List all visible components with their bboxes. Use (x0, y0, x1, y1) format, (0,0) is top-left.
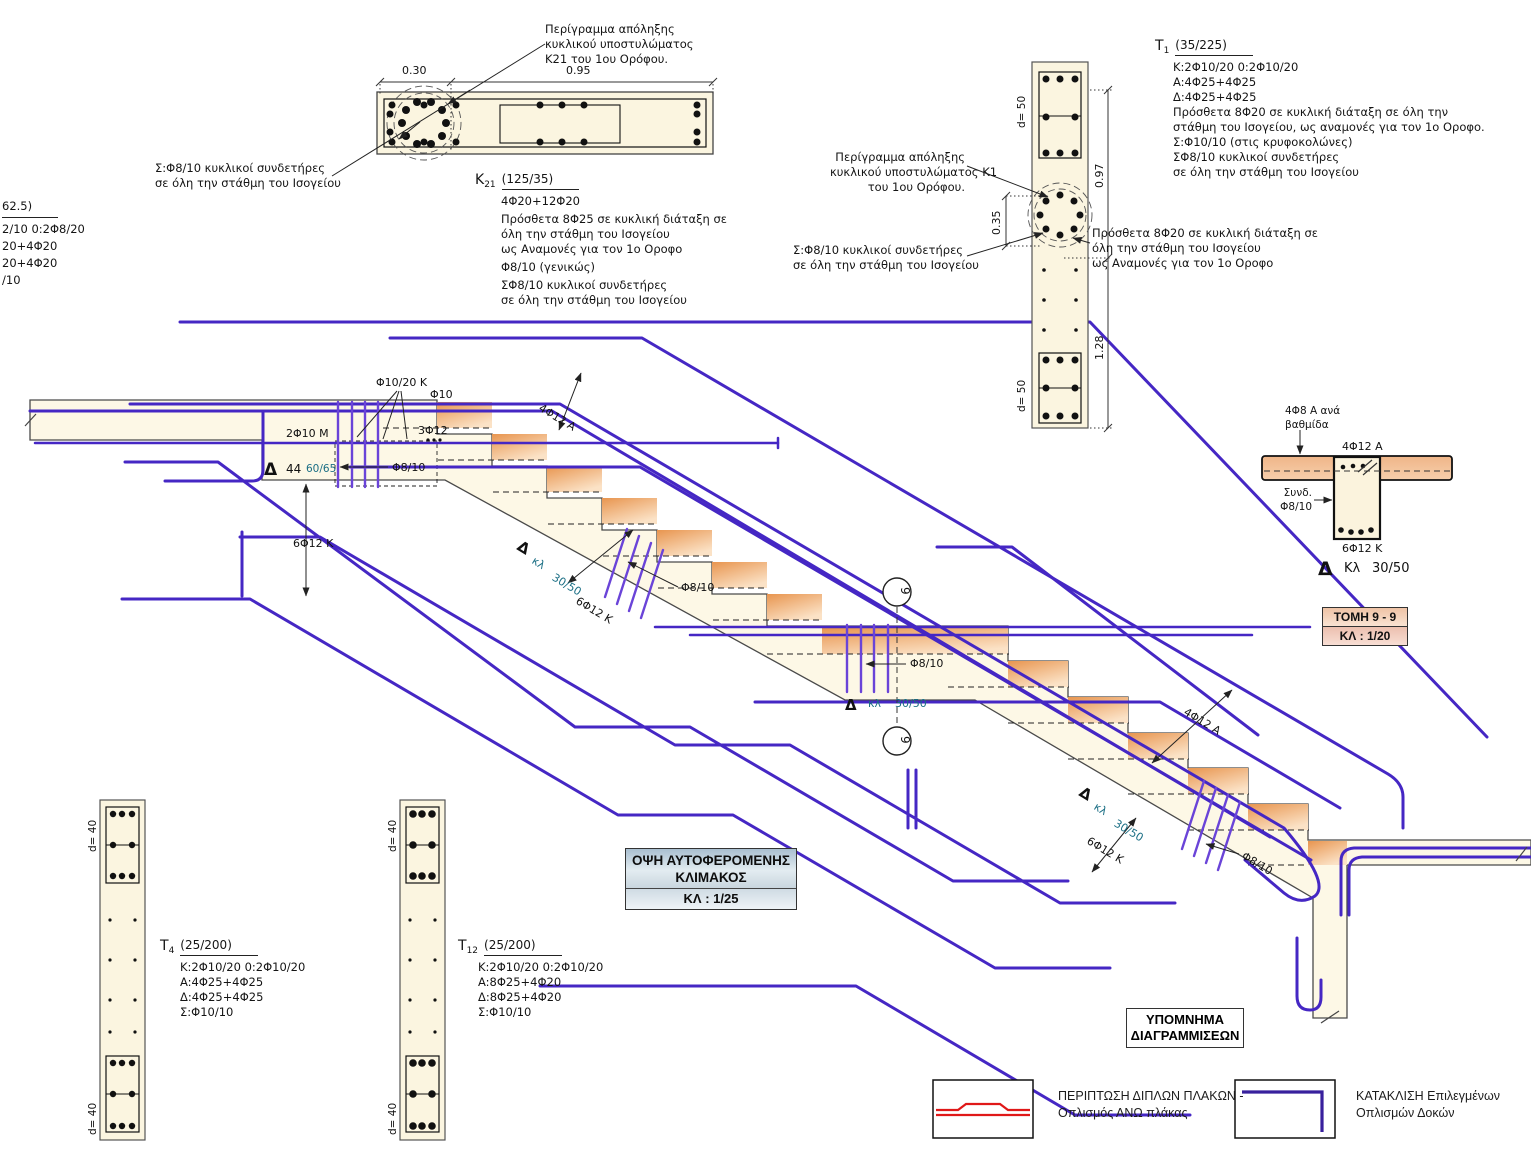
t4-note-line: Σ:Φ10/10 (180, 1005, 305, 1020)
tomh-title-box: ΤΟΜΗ 9 - 9 ΚΛ : 1/20 (1322, 607, 1408, 646)
left-fragment-line: 2/10 0:2Φ8/20 (2, 221, 85, 238)
t1-size: (35/225) (1175, 38, 1253, 56)
section-number-bottom: 9 (898, 736, 912, 744)
k21-callout-line: κυκλικού υποστυλώματος (545, 37, 694, 52)
t12-note-line: K:2Φ10/20 0:2Φ10/20 (478, 960, 603, 975)
label-phi10: Φ10 (430, 388, 453, 401)
label-kl-f2: κλ (1092, 800, 1110, 818)
k21-side-note-line: σε όλη την στάθμη του Ισογείου (155, 176, 341, 191)
t4-note-line: Δ:4Φ25+4Φ25 (180, 990, 305, 1005)
label-phi810-1: Φ8/10 (392, 461, 425, 474)
legend-item2-label: ΚΑΤΑΚΛΙΣΗ Επιλεγμένων Οπλισμών Δοκών (1356, 1088, 1500, 1122)
t4-size: (25/200) (180, 938, 258, 956)
t1-tag: T1 (1155, 39, 1169, 56)
beam-delta: Δ (1318, 558, 1333, 580)
label-phi810-2: Φ8/10 (681, 581, 714, 594)
k21-note-line: ΣΦ8/10 κυκλικοί συνδετήρες (501, 278, 727, 293)
t1-dim-097: 0.97 (1093, 164, 1106, 189)
t1-note-line: στάθμη του Ισογείου, ως αναμονές για τον… (1173, 120, 1485, 135)
label-6f12k-1: 6Φ12 K (293, 537, 334, 550)
label-kl-mid: κλ (868, 697, 881, 710)
t4-note-line: K:2Φ10/20 0:2Φ10/20 (180, 960, 305, 975)
t12-size: (25/200) (484, 938, 562, 956)
drawing-scale: ΚΛ : 1/25 (626, 889, 796, 909)
label-delta-f1: Δ (514, 537, 534, 559)
t4-note-line: A:4Φ25+4Φ25 (180, 975, 305, 990)
t4-d-bottom: d= 40 (87, 1103, 99, 1135)
label-delta-f2: Δ (1076, 783, 1096, 805)
t1-callout-line: του 1ου Ορόφου. (830, 180, 965, 195)
beam-bottom-bar: 6Φ12 K (1342, 542, 1383, 555)
label-6065: 60/65 (306, 463, 336, 475)
t4-tag: T4 (160, 939, 174, 956)
beam-callout-line: 4Φ8 Α ανά (1285, 404, 1340, 418)
left-fragment-line: 20+4Φ20 (2, 238, 85, 255)
t1-note-line: Δ:4Φ25+4Φ25 (1173, 90, 1485, 105)
t1-note-line: ΣΦ8/10 κυκλικοί συνδετήρες (1173, 150, 1485, 165)
t1-callout-line: Περίγραμμα απόληξης (830, 150, 965, 165)
k21-size: (125/35) (502, 172, 580, 190)
t12-note-line: A:8Φ25+4Φ20 (478, 975, 603, 990)
drawing-title-box: ΟΨΗ ΑΥΤΟΦΕΡΟΜΕΝΗΣ ΚΛΙΜΑΚΟΣ ΚΛ : 1/25 (625, 848, 797, 910)
k21-dim-left: 0.30 (402, 64, 427, 77)
t1-note-line: Σ:Φ10/10 (στις κρυφοκολώνες) (1173, 135, 1485, 150)
t12-notes: T12 (25/200) K:2Φ10/20 0:2Φ10/20 A:8Φ25+… (458, 938, 603, 1020)
t1-callout: Περίγραμμα απόληξης κυκλικού υποστυλώματ… (830, 150, 965, 195)
label-3f12: 3Φ12 (418, 424, 448, 437)
beam-scale: 30/50 (1372, 561, 1409, 576)
beam-stirrup-line: Φ8/10 (1270, 500, 1312, 514)
k21-note-line: Πρόσθετα 8Φ25 σε κυκλική διάταξη σε (501, 212, 727, 227)
left-fragment-line: 20+4Φ20 (2, 255, 85, 272)
k21-note-line: 4Φ20+12Φ20 (501, 194, 727, 209)
t4-section: d= 40 d= 40 (87, 800, 145, 1140)
beam-stirrup-note: Συνδ. Φ8/10 (1270, 486, 1312, 514)
k21-note-line: Φ8/10 (γενικώς) (501, 260, 727, 275)
label-3050-f2: 30/50 (1112, 817, 1146, 844)
k21-callout: Περίγραμμα απόληξης κυκλικού υποστυλώματ… (545, 22, 694, 67)
t1-note-line: K:2Φ10/20 0:2Φ10/20 (1173, 60, 1485, 75)
structural-drawing-canvas: 9 9 Φ10/20 K Φ10 2Φ10 M 3Φ12 Δ 44 60/65 … (0, 0, 1531, 1168)
k21-callout-line: K21 του 1ου Ορόφου. (545, 52, 694, 67)
k21-tag: K21 (475, 173, 496, 190)
legend-item1-label: ΠΕΡΙΠΤΩΣΗ ΔΙΠΛΩΝ ΠΛΑΚΩΝ - Οπλισμός ΑΝΩ π… (1058, 1088, 1244, 1122)
label-phi810-3: Φ8/10 (910, 657, 943, 670)
t1-d-top: d= 50 (1016, 96, 1028, 128)
t1-notes: T1 (35/225) K:2Φ10/20 0:2Φ10/20 A:4Φ25+4… (1155, 38, 1485, 180)
legend-title: ΥΠΟΜΝΗΜΑ ΔΙΑΓΡΑΜΜΙΣΕΩΝ (1127, 1009, 1243, 1047)
t1-note2-line: Πρόσθετα 8Φ20 σε κυκλική διάταξη σε (1092, 226, 1318, 241)
left-fragment-line: /10 (2, 272, 85, 289)
left-fragment-line: 62.5) (2, 198, 58, 218)
label-6f12k-f1: 6Φ12 K (573, 594, 615, 626)
label-delta-mid: Δ (845, 696, 857, 714)
t12-tag: T12 (458, 939, 478, 956)
t1-side-note-line: σε όλη την στάθμη του Ισογείου (793, 258, 979, 273)
t12-d-bottom: d= 40 (387, 1103, 399, 1135)
t12-note-line: Δ:8Φ25+4Φ20 (478, 990, 603, 1005)
tomh-scale: ΚΛ : 1/20 (1323, 627, 1407, 645)
beam-top-bar: 4Φ12 A (1342, 440, 1383, 453)
label-2f10m: 2Φ10 M (286, 427, 329, 440)
beam-kl: Κλ (1344, 561, 1361, 576)
drawing-title: ΟΨΗ ΑΥΤΟΦΕΡΟΜΕΝΗΣ ΚΛΙΜΑΚΟΣ (626, 849, 796, 889)
t1-note2-line: ως Αναμονές για τον 1ο Οροφο (1092, 256, 1318, 271)
label-phi10-20k: Φ10/20 K (376, 376, 428, 389)
k21-side-note: Σ:Φ8/10 κυκλικοί συνδετήρες σε όλη την σ… (155, 161, 341, 191)
label-4f12a-1: 4Φ12 A (536, 401, 578, 433)
label-delta-44: Δ (264, 460, 278, 480)
label-kl-f1: κλ (530, 554, 548, 572)
t1-note2-line: όλη την στάθμη του Ισογείου (1092, 241, 1318, 256)
beam-callout: 4Φ8 Α ανά βαθμίδα (1285, 404, 1340, 432)
t1-note-line: Πρόσθετα 8Φ20 σε κυκλική διάταξη σε όλη … (1173, 105, 1485, 120)
t4-notes: T4 (25/200) K:2Φ10/20 0:2Φ10/20 A:4Φ25+4… (160, 938, 305, 1020)
left-fragment-block: 62.5) 2/10 0:2Φ8/20 20+4Φ20 20+4Φ20 /10 (2, 198, 85, 289)
k21-notes: K21 (125/35) 4Φ20+12Φ20 Πρόσθετα 8Φ25 σε… (475, 172, 727, 308)
t12-section: d= 40 d= 40 (387, 800, 445, 1140)
t12-d-top: d= 40 (387, 820, 399, 852)
t1-d-bottom: d= 50 (1016, 380, 1028, 412)
t1-dim-035: 0.35 (990, 211, 1003, 236)
k21-note-line: σε όλη την στάθμη του Ισογείου (501, 293, 727, 308)
tomh-title: ΤΟΜΗ 9 - 9 (1323, 608, 1407, 627)
k21-note-line: ως Αναμονές για τον 1ο Οροφο (501, 242, 727, 257)
t1-note-line: σε όλη την στάθμη του Ισογείου (1173, 165, 1485, 180)
t12-note-line: Σ:Φ10/10 (478, 1005, 603, 1020)
t1-note2: Πρόσθετα 8Φ20 σε κυκλική διάταξη σε όλη … (1092, 226, 1318, 271)
beam-callout-line: βαθμίδα (1285, 418, 1340, 432)
k21-side-note-line: Σ:Φ8/10 κυκλικοί συνδετήρες (155, 161, 341, 176)
label-6f12k-f2: 6Φ12 K (1084, 834, 1126, 866)
t1-section: 0.97 1.28 0.35 d= 50 d= 50 (967, 62, 1112, 432)
section-number-top: 9 (898, 587, 912, 595)
legend-title-box: ΥΠΟΜΝΗΜΑ ΔΙΑΓΡΑΜΜΙΣΕΩΝ (1126, 1008, 1244, 1048)
label-3050-mid: 30/50 (895, 697, 927, 710)
label-3050-f1: 30/50 (550, 571, 584, 598)
t1-side-note-line: Σ:Φ8/10 κυκλικοί συνδετήρες (793, 243, 979, 258)
t1-side-note: Σ:Φ8/10 κυκλικοί συνδετήρες σε όλη την σ… (793, 243, 979, 273)
beam-stirrup-line: Συνδ. (1270, 486, 1312, 500)
t1-note-line: A:4Φ25+4Φ25 (1173, 75, 1485, 90)
t1-dim-128: 1.28 (1093, 336, 1106, 361)
t4-d-top: d= 40 (87, 820, 99, 852)
k21-note-line: όλη την στάθμη του Ισογείου (501, 227, 727, 242)
t1-callout-line: κυκλικού υποστυλώματος K1 (830, 165, 965, 180)
label-44: 44 (286, 462, 301, 476)
k21-callout-line: Περίγραμμα απόληξης (545, 22, 694, 37)
